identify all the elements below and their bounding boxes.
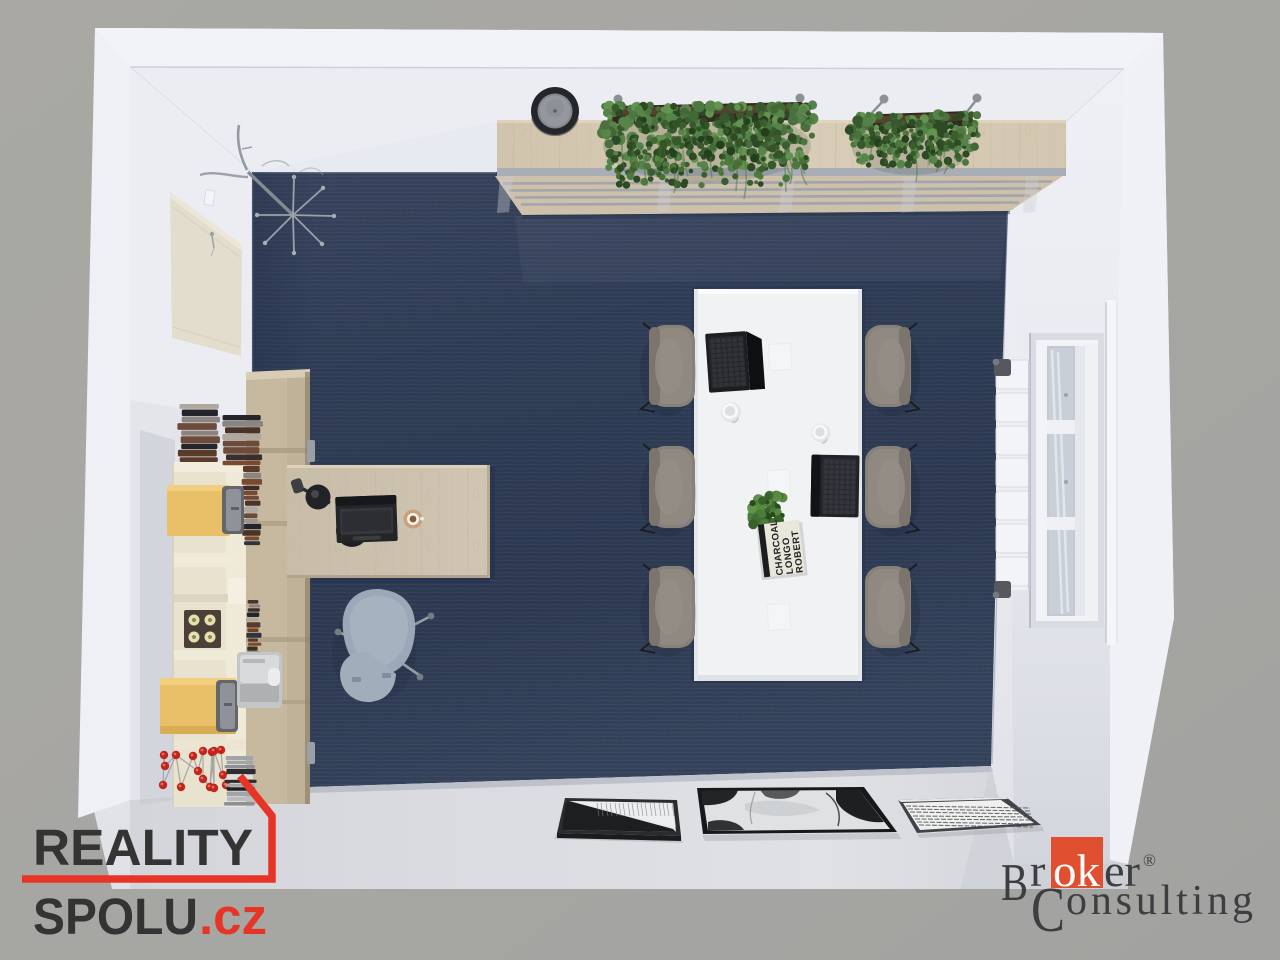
svg-text:REALITY: REALITY bbox=[33, 819, 253, 876]
svg-text:C: C bbox=[1031, 875, 1065, 945]
svg-text:®: ® bbox=[1143, 851, 1156, 870]
svg-text:.cz: .cz bbox=[199, 888, 267, 945]
svg-text:B: B bbox=[1001, 854, 1028, 912]
svg-text:SPOLU: SPOLU bbox=[33, 888, 198, 945]
